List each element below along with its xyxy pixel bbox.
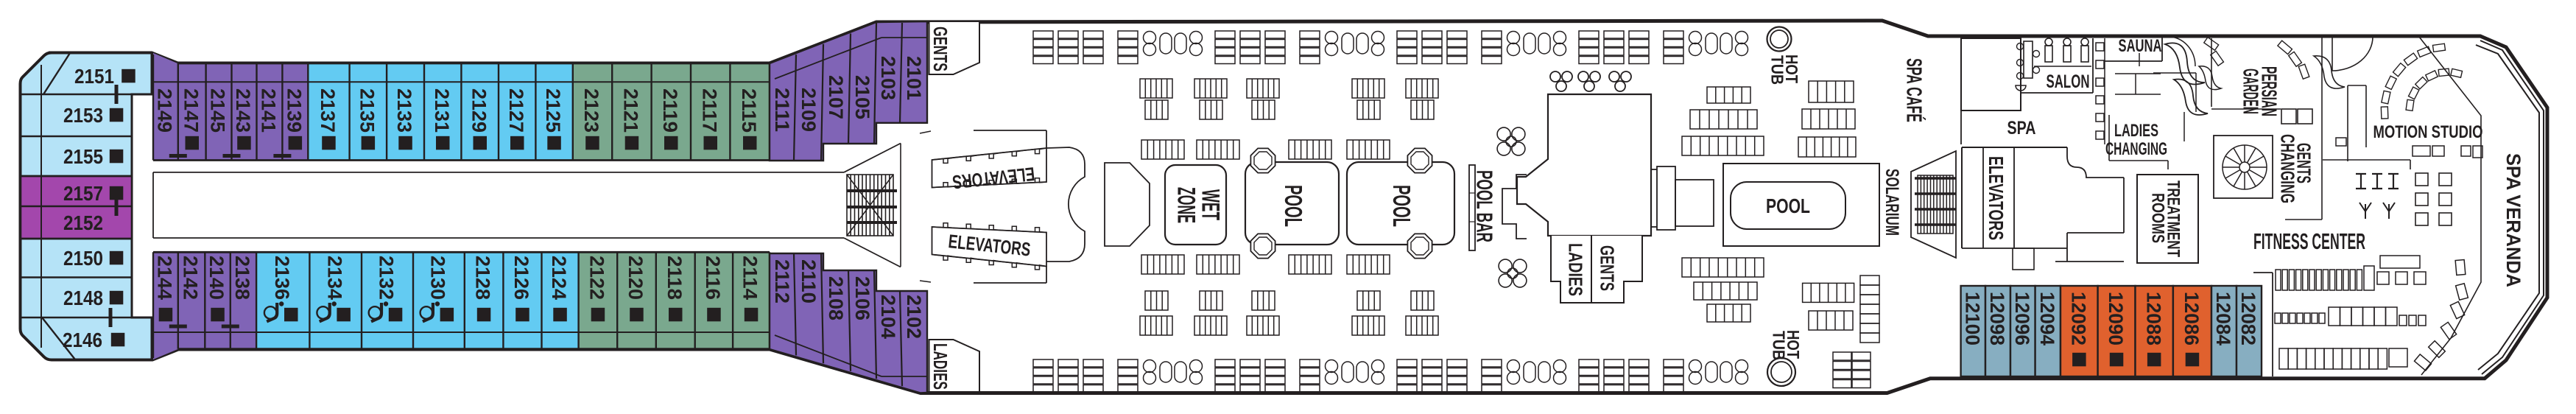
svg-text:POOL: POOL xyxy=(1280,185,1307,227)
svg-text:2131: 2131 xyxy=(431,88,453,133)
svg-text:12082: 12082 xyxy=(2237,292,2259,345)
svg-text:12086: 12086 xyxy=(2181,292,2203,345)
svg-text:2124: 2124 xyxy=(548,256,570,300)
svg-text:2134: 2134 xyxy=(323,256,345,300)
svg-text:LADIES: LADIES xyxy=(1565,243,1587,296)
svg-text:2136: 2136 xyxy=(271,256,293,300)
svg-text:LADIES: LADIES xyxy=(929,343,951,390)
svg-text:2149: 2149 xyxy=(154,88,176,133)
svg-text:12090: 12090 xyxy=(2105,292,2127,345)
svg-text:2117: 2117 xyxy=(698,88,720,133)
svg-text:2133: 2133 xyxy=(393,88,415,133)
svg-text:SPA CAFÉ: SPA CAFÉ xyxy=(1901,58,1926,122)
svg-text:2141: 2141 xyxy=(258,88,280,133)
svg-text:2147: 2147 xyxy=(180,88,202,133)
svg-text:2128: 2128 xyxy=(472,256,494,300)
svg-text:2110: 2110 xyxy=(798,259,820,304)
svg-text:2115: 2115 xyxy=(738,88,760,133)
svg-text:ROOMS: ROOMS xyxy=(2148,193,2168,243)
svg-text:2111: 2111 xyxy=(771,88,793,132)
svg-text:2104: 2104 xyxy=(877,295,899,339)
svg-text:2109: 2109 xyxy=(798,88,820,132)
svg-text:2135: 2135 xyxy=(356,88,379,133)
svg-text:2140: 2140 xyxy=(205,256,228,300)
svg-text:SOLARIUM: SOLARIUM xyxy=(1882,169,1902,236)
svg-text:SPA VERANDA: SPA VERANDA xyxy=(2502,153,2524,287)
svg-text:2139: 2139 xyxy=(284,88,306,133)
svg-text:12100: 12100 xyxy=(1961,292,1983,345)
svg-text:2130: 2130 xyxy=(427,256,449,300)
svg-text:2106: 2106 xyxy=(851,276,873,320)
svg-text:12096: 12096 xyxy=(2011,292,2033,345)
svg-text:2105: 2105 xyxy=(851,75,873,119)
svg-text:2132: 2132 xyxy=(376,256,398,300)
svg-text:CHANGING: CHANGING xyxy=(2277,134,2299,203)
svg-text:2150: 2150 xyxy=(63,247,103,270)
svg-text:2148: 2148 xyxy=(63,287,103,309)
svg-text:2155: 2155 xyxy=(63,145,103,168)
svg-text:2122: 2122 xyxy=(586,256,608,300)
svg-text:2119: 2119 xyxy=(659,88,681,133)
svg-text:12084: 12084 xyxy=(2212,292,2234,345)
svg-text:POOL: POOL xyxy=(1766,194,1810,217)
svg-text:2114: 2114 xyxy=(739,256,761,300)
svg-text:12094: 12094 xyxy=(2036,292,2058,345)
svg-text:2129: 2129 xyxy=(468,88,490,133)
svg-text:2118: 2118 xyxy=(664,256,686,300)
svg-text:2101: 2101 xyxy=(903,56,925,100)
svg-text:2103: 2103 xyxy=(877,56,899,100)
svg-text:12088: 12088 xyxy=(2142,292,2164,345)
svg-text:MOTION STUDIO: MOTION STUDIO xyxy=(2373,122,2483,142)
svg-text:2138: 2138 xyxy=(231,256,253,300)
svg-text:2137: 2137 xyxy=(317,88,339,133)
svg-text:2142: 2142 xyxy=(180,256,202,300)
svg-text:2107: 2107 xyxy=(825,75,847,119)
svg-text:LADIES: LADIES xyxy=(2114,121,2158,141)
svg-text:2120: 2120 xyxy=(624,256,647,300)
svg-text:TUB: TUB xyxy=(1768,55,1787,85)
svg-text:2121: 2121 xyxy=(620,88,642,133)
svg-text:ELEVATORS: ELEVATORS xyxy=(1985,156,2007,240)
svg-text:POOL BAR: POOL BAR xyxy=(1472,170,1498,242)
svg-text:2116: 2116 xyxy=(702,256,724,300)
svg-text:CHANGING: CHANGING xyxy=(2105,139,2167,159)
svg-text:2153: 2153 xyxy=(63,104,103,127)
svg-text:GENTS: GENTS xyxy=(1597,245,1619,291)
svg-text:TUB: TUB xyxy=(1770,331,1789,360)
svg-text:12098: 12098 xyxy=(1986,292,2008,345)
svg-text:12092: 12092 xyxy=(2067,292,2089,345)
svg-text:2123: 2123 xyxy=(580,88,602,133)
svg-text:SALON: SALON xyxy=(2047,71,2090,92)
svg-text:2145: 2145 xyxy=(207,88,229,133)
svg-text:2151: 2151 xyxy=(74,65,114,88)
svg-text:2102: 2102 xyxy=(903,295,925,339)
svg-text:2146: 2146 xyxy=(63,329,102,351)
svg-text:2144: 2144 xyxy=(154,256,176,300)
svg-text:SAUNA: SAUNA xyxy=(2119,36,2162,56)
svg-text:2157: 2157 xyxy=(63,182,103,205)
svg-text:2108: 2108 xyxy=(825,276,847,320)
svg-text:GENTS: GENTS xyxy=(929,27,951,71)
svg-text:FITNESS CENTER: FITNESS CENTER xyxy=(2253,228,2365,254)
svg-text:2152: 2152 xyxy=(63,211,103,234)
svg-text:GARDEN: GARDEN xyxy=(2238,69,2262,114)
svg-text:2143: 2143 xyxy=(232,88,254,133)
svg-text:ZONE: ZONE xyxy=(1172,187,1200,223)
svg-text:2127: 2127 xyxy=(505,88,527,133)
svg-text:POOL: POOL xyxy=(1388,185,1415,227)
svg-text:2126: 2126 xyxy=(510,256,532,300)
svg-text:2125: 2125 xyxy=(542,88,564,133)
svg-text:2112: 2112 xyxy=(771,259,793,304)
svg-text:SPA: SPA xyxy=(2007,118,2036,138)
